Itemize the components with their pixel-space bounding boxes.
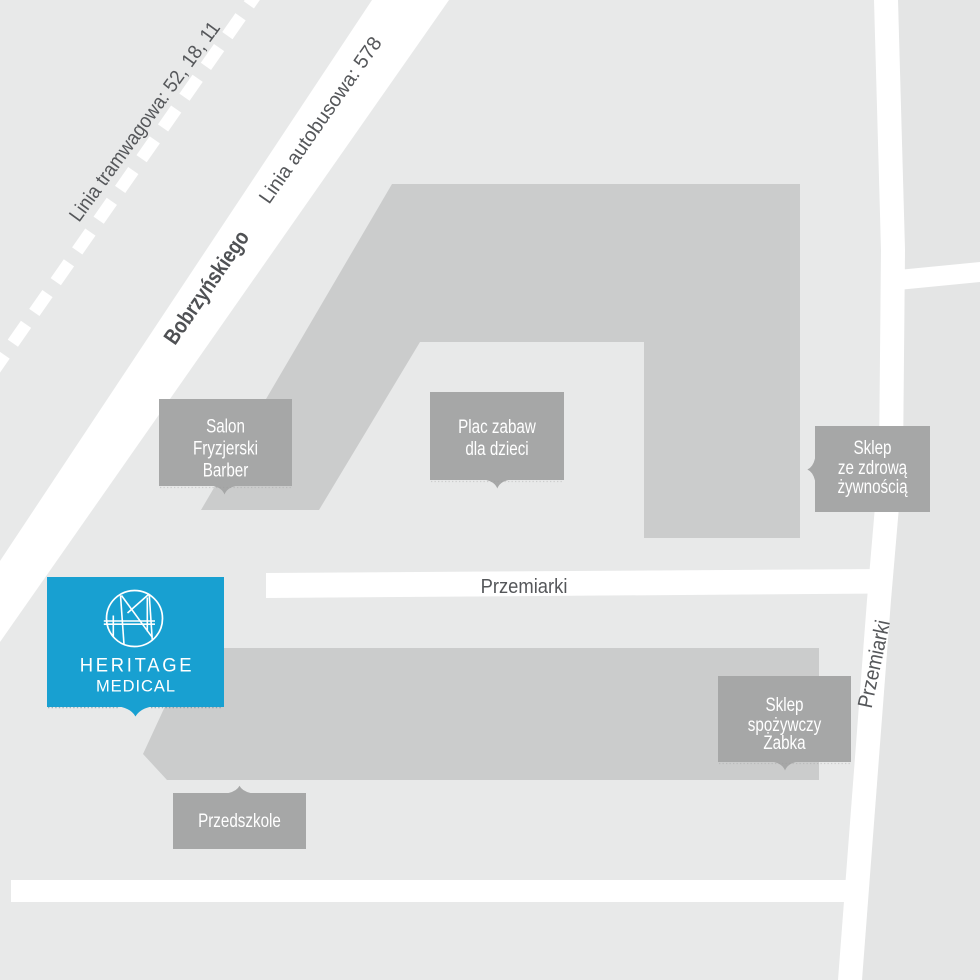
svg-text:żywnością: żywnością [837,475,907,497]
svg-text:Barber: Barber [203,459,249,481]
svg-text:Przedszkole: Przedszkole [198,809,281,831]
svg-text:Żabka: Żabka [763,731,805,753]
svg-text:MEDICAL: MEDICAL [96,676,176,695]
svg-text:Sklep: Sklep [765,693,803,715]
svg-text:Salon: Salon [206,415,245,437]
svg-text:HERITAGE: HERITAGE [80,654,195,675]
svg-text:Przemiarki: Przemiarki [481,576,568,598]
svg-text:Plac zabaw: Plac zabaw [458,415,536,437]
svg-text:Sklep: Sklep [853,436,891,458]
svg-text:Fryzjerski: Fryzjerski [193,437,258,459]
svg-text:dla dzieci: dla dzieci [465,437,528,459]
